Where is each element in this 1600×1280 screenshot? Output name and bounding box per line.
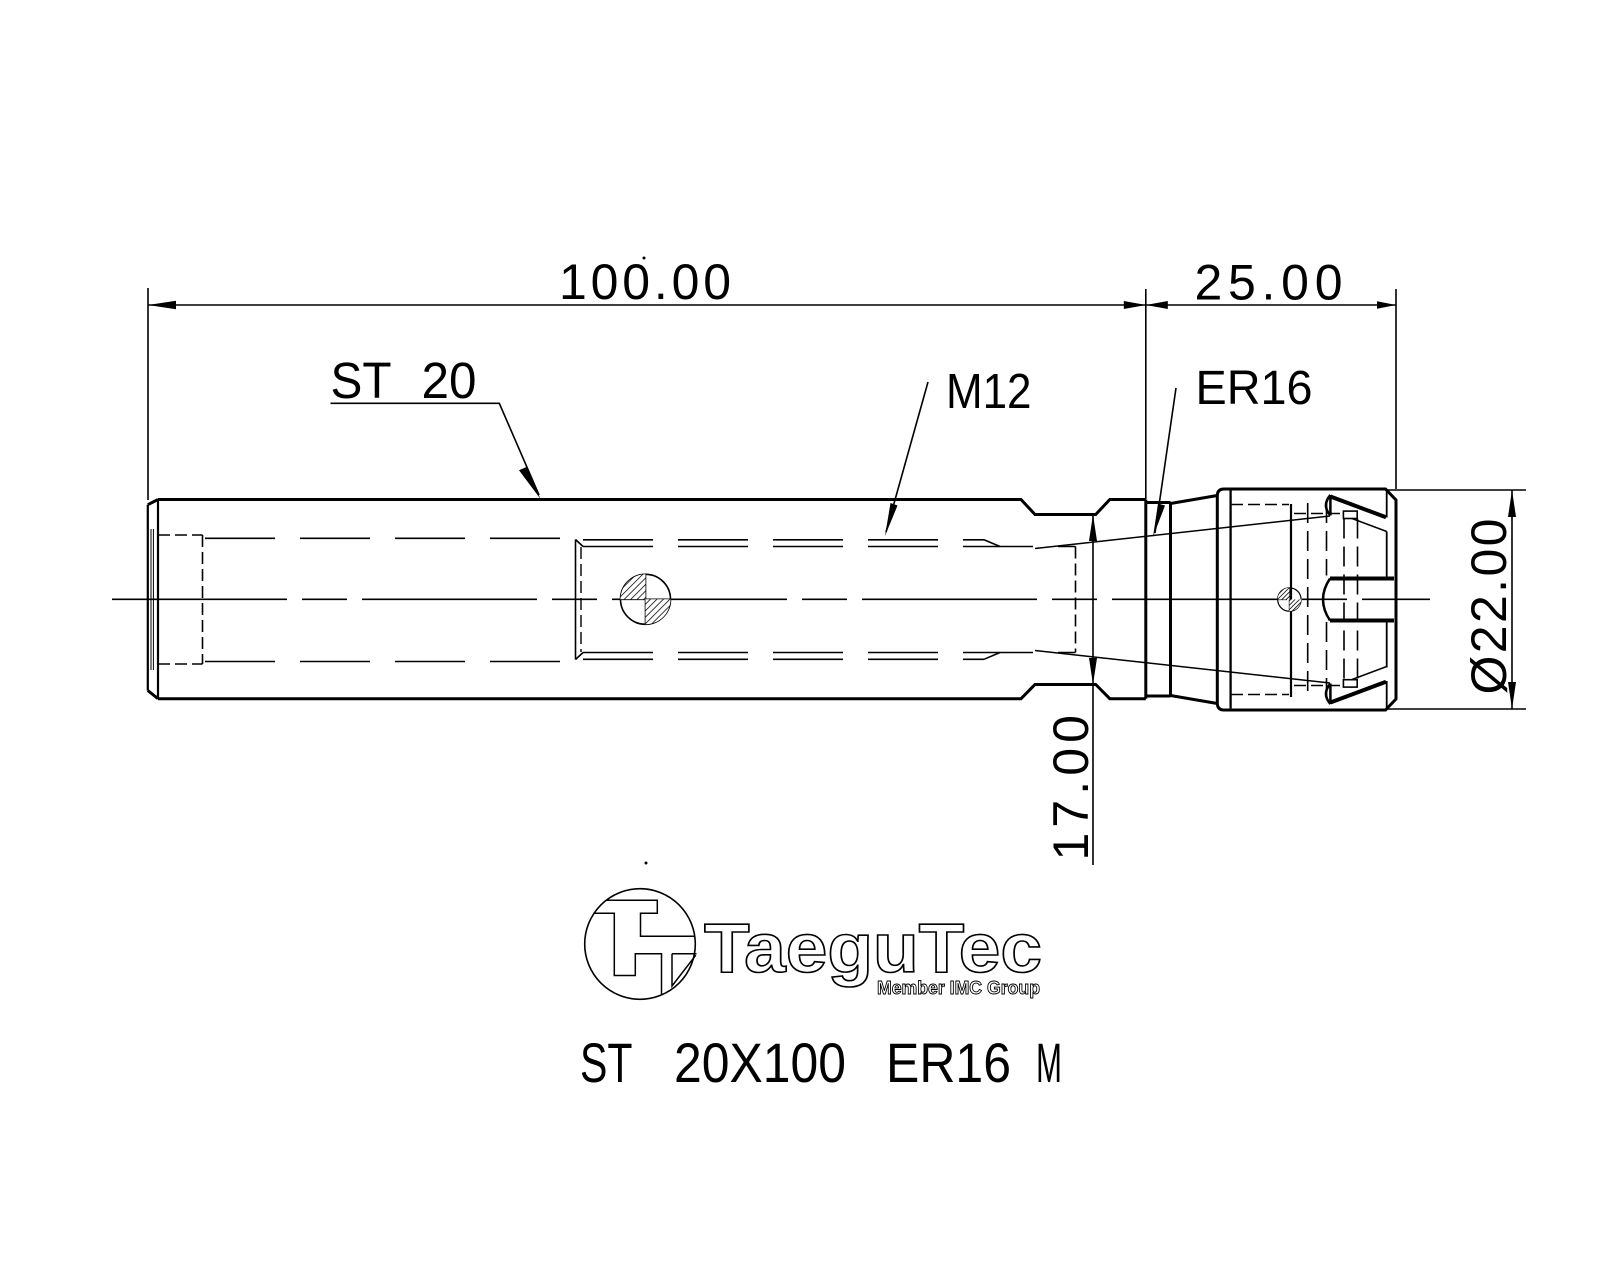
svg-text:TaeguTec: TaeguTec bbox=[704, 909, 1042, 987]
svg-text:Ø22.00: Ø22.00 bbox=[1461, 519, 1517, 695]
svg-text:M12: M12 bbox=[946, 365, 1032, 419]
svg-text:100.00: 100.00 bbox=[559, 254, 731, 310]
svg-text:ST: ST bbox=[331, 352, 392, 409]
svg-text:Member IMC Group: Member IMC Group bbox=[877, 978, 1040, 998]
svg-text:M: M bbox=[1036, 1031, 1062, 1094]
svg-text:17.00: 17.00 bbox=[1043, 715, 1099, 861]
svg-text:ER16: ER16 bbox=[1196, 362, 1313, 415]
svg-text:25.00: 25.00 bbox=[1195, 255, 1343, 311]
svg-text:20X100: 20X100 bbox=[674, 1031, 846, 1094]
svg-text:ST: ST bbox=[580, 1031, 633, 1094]
svg-text:ER16: ER16 bbox=[886, 1031, 1011, 1094]
svg-text:20: 20 bbox=[422, 352, 477, 409]
